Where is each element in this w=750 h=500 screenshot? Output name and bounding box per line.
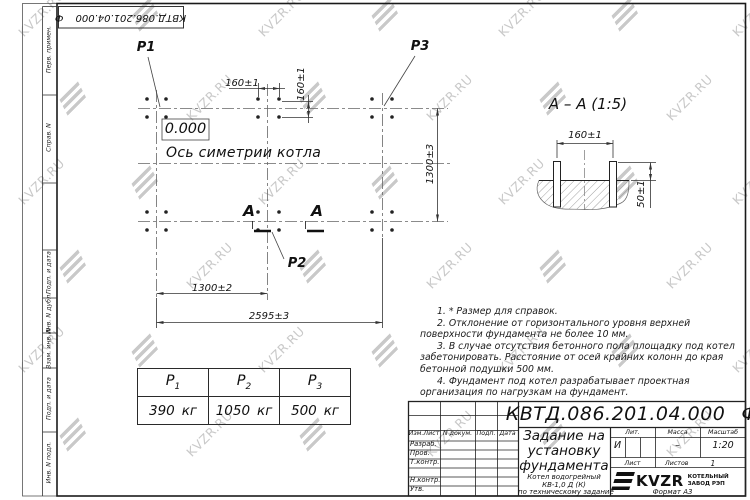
side-strip-label-inv-podl: Инв. N подл. — [45, 440, 52, 486]
drawing-sheet: { "watermark": {"text": "KVZR.RU"}, "doc… — [0, 0, 750, 500]
dim-label-bolt-spacing-h: 160±1 — [224, 78, 260, 89]
revision-col-izm-list: Изм.Лист — [408, 430, 440, 437]
boiler-symmetry-axis-label: Ось симетрии котла — [166, 146, 326, 162]
load-point-label-p2: Р2 — [281, 257, 313, 272]
sheets-value: 1 — [711, 460, 716, 468]
side-strip-label-podp-data-1: Подп. и дата — [45, 249, 52, 297]
loads-table-header-row: Р1 Р2 Р3 — [138, 369, 351, 397]
sheet-label: Лист — [610, 460, 655, 467]
load-value-p1: 390кг — [138, 397, 209, 425]
role-prov: Пров. — [410, 450, 440, 458]
note-2: 2. Отклонение от горизонтального уровня … — [420, 318, 746, 341]
section-cut-marks — [253, 221, 325, 231]
elevation-label: 0.000 — [162, 121, 209, 137]
section-letter-right: А — [306, 203, 328, 220]
load-header-p2: Р2 — [209, 369, 280, 397]
load-value-p2: 1050кг — [209, 397, 280, 425]
load-header-p1: Р1 — [138, 369, 209, 397]
load-header-p3: Р3 — [280, 369, 351, 397]
revision-col-podp: Подп. — [475, 430, 497, 437]
format-label: Формат А3 — [635, 489, 710, 497]
scale-header: Масштаб — [700, 429, 746, 436]
doc-title-line-1: Задание на — [518, 429, 610, 444]
section-view-title: А – А (1:5) — [528, 96, 648, 113]
doc-subtitle-line-3: по техническому задание — [518, 489, 610, 497]
role-tkontr: Т.контр. — [410, 459, 440, 467]
dim-label-bolt-spacing-v: 160±1 — [296, 66, 308, 102]
dim-label-section-bolt-spacing: 160±1 — [557, 130, 613, 141]
load-value-p3: 500кг — [280, 397, 351, 425]
side-strip-label-perv-primen: Перв. примен. — [45, 25, 52, 75]
kvzr-logo-text: KVZR — [636, 473, 684, 490]
note-4: 4. Фундамент под котел разрабатывает про… — [420, 376, 746, 399]
kvzr-logo-icon — [611, 472, 635, 490]
dim-label-section-bolt-height: 50±1 — [636, 176, 648, 212]
notes-block: 1. * Размер для справок. 2. Отклонение о… — [420, 306, 746, 399]
lit-header: Лит. — [610, 429, 655, 436]
role-nkontr: Н.контр. — [410, 477, 440, 485]
scale-value: 1:20 — [700, 441, 746, 452]
side-strip-label-sprav-n: Справ. N — [45, 118, 52, 158]
dim-label-half-length: 1300±2 — [184, 283, 240, 294]
title-block-doc-code: КВТД.086.201.04.000 Ф — [518, 402, 746, 427]
sheets-cell: Листов 1 — [655, 460, 746, 468]
kvzr-org-name: КОТЕЛЬНЫЙ ЗАВОД РЭП — [688, 474, 729, 487]
note-3: 3. В случае отсутствия бетонного пола пл… — [420, 341, 746, 376]
dim-label-width: 1300±3 — [425, 139, 437, 189]
revision-col-n-dokum: N докум. — [440, 430, 475, 437]
doc-title-line-3: фундамента — [518, 459, 610, 474]
revision-col-data: Дата — [497, 430, 518, 437]
lit-value: И — [610, 441, 625, 452]
doc-code-suffix: Ф — [55, 12, 64, 23]
mass-value: – — [655, 441, 700, 452]
dim-label-full-length: 2595±3 — [241, 311, 297, 322]
mass-header: Масса — [655, 429, 700, 436]
note-1: 1. * Размер для справок. — [420, 306, 746, 318]
loads-table-value-row: 390кг 1050кг 500кг — [138, 397, 351, 425]
doc-code: КВТД.086.201.04.000 — [76, 12, 187, 23]
load-point-label-p3: Р3 — [404, 40, 436, 55]
anchor-bolts — [145, 97, 394, 232]
loads-table: Р1 Р2 Р3 390кг 1050кг 500кг — [137, 368, 351, 425]
load-point-label-p1: Р1 — [131, 41, 161, 56]
side-strip-label-vzam-inv: Взам. инв. N — [45, 325, 52, 373]
doc-code-stamp: КВТД.086.201.04.000 Ф — [58, 7, 183, 28]
sheets-label: Листов — [665, 460, 689, 468]
role-razrab: Разраб. — [410, 441, 440, 449]
side-strip-label-podp-data-2: Подп. и дата — [45, 375, 52, 423]
foundation-bolt — [610, 162, 617, 208]
role-utv: Утв. — [410, 486, 440, 494]
foundation-bolt — [554, 162, 561, 208]
section-letter-left: А — [238, 203, 260, 220]
doc-title-line-2: установку — [518, 444, 610, 459]
